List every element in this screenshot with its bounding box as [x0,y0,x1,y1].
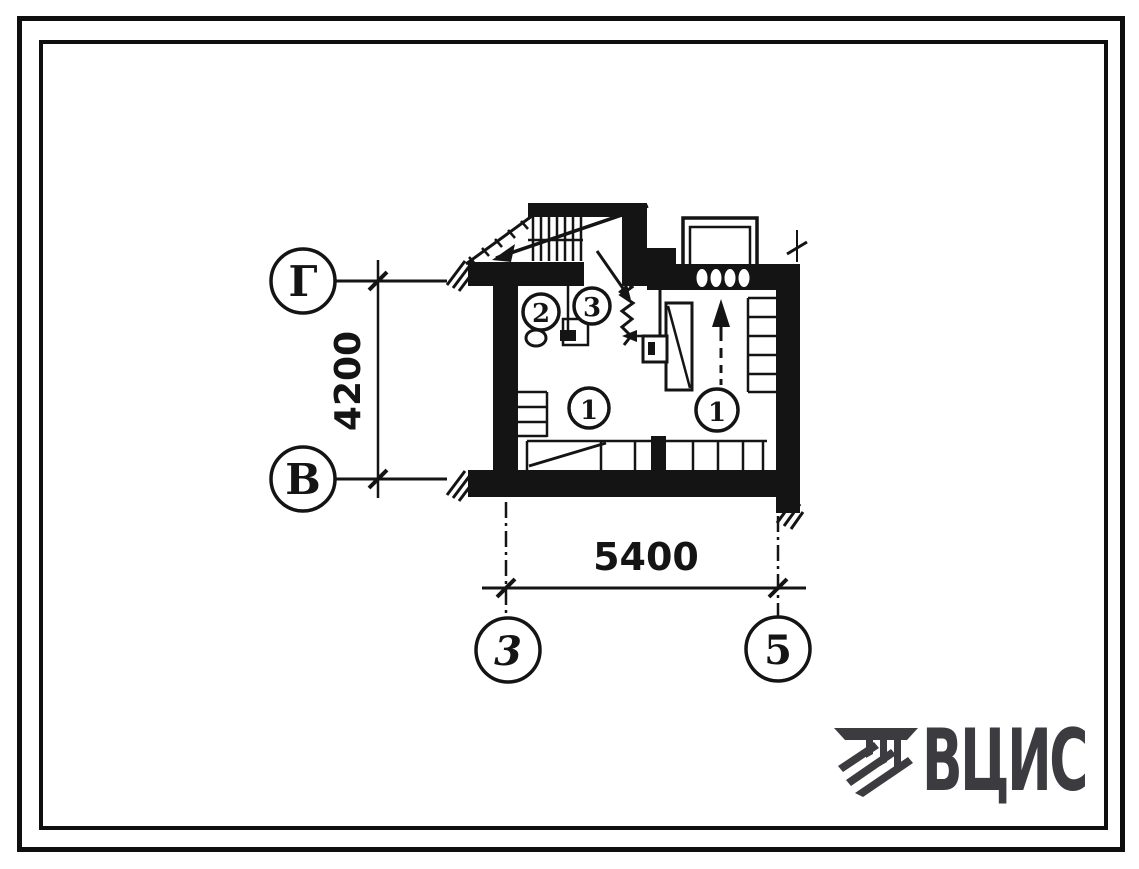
door-leaf [666,303,692,390]
room-label-3: 3 [583,293,601,323]
vertical-dimension-value: 4200 [328,331,369,431]
logo-text: ВЦИС [922,728,1086,795]
logo: ВЦИС [834,720,1139,806]
bottom-axes: 5400 3 5 [476,502,810,682]
outside-staircase [466,216,583,265]
left-axes: Г В 4200 [271,249,447,511]
balcony [683,218,757,264]
axis-label-row-bottom: В [285,455,321,504]
room-label-2: 2 [532,299,550,329]
bottom-staircase [527,436,767,470]
right-wall-axis-stub [787,230,807,262]
axis-label-row-top: Г [289,257,318,306]
right-staircase [748,298,776,392]
room-label-1-right: 1 [708,398,726,428]
axis-label-column-right: 5 [764,627,792,674]
wc-fixture [643,336,667,362]
room-labels: 2 3 1 1 [523,288,738,431]
sink-fixture [526,330,546,346]
room-circle-2: 2 [523,294,559,330]
room-circle-3: 3 [574,288,610,324]
room-label-1-left: 1 [580,396,598,426]
horizontal-dimension-value: 5400 [593,535,699,579]
left-staircase [518,392,547,437]
axis-label-column-left: 3 [494,628,522,675]
room-circle-1-right: 1 [696,389,738,431]
logo-icon [834,720,918,800]
room-circle-1-left: 1 [569,388,609,428]
up-direction-arrow [712,299,730,385]
